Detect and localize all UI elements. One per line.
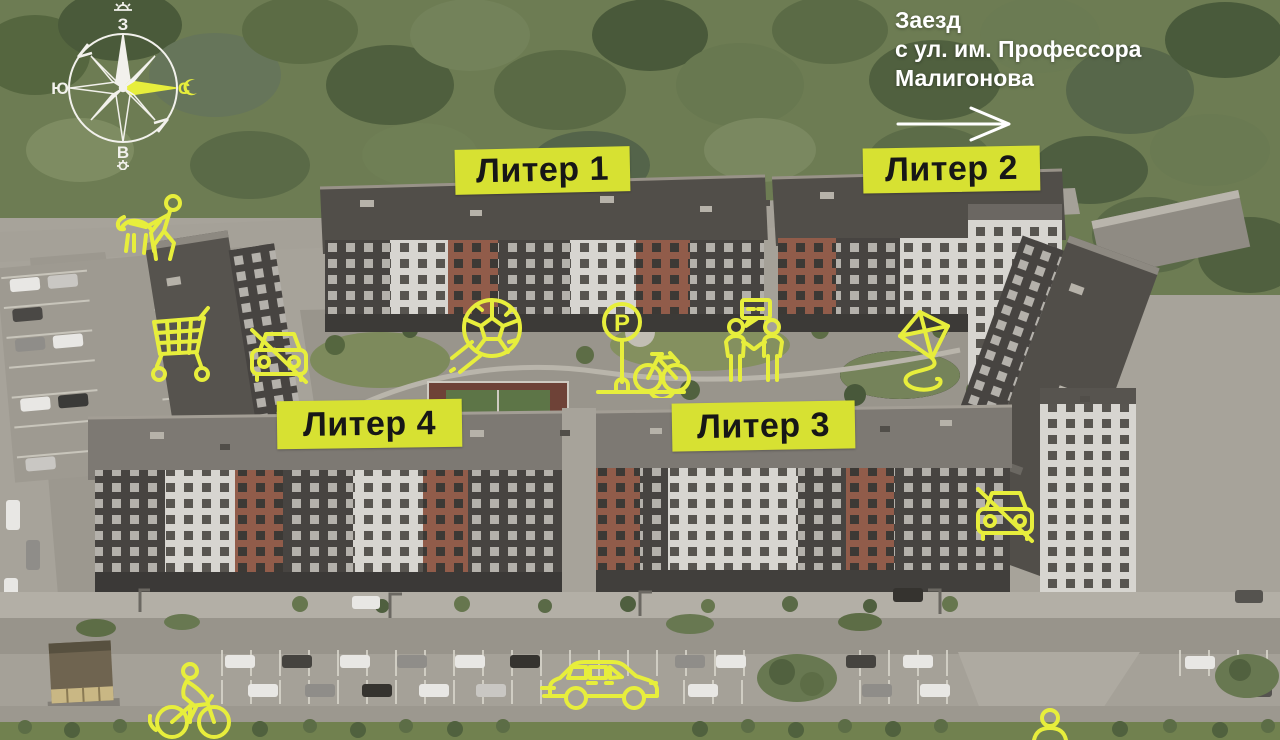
entrance-note-line1: Заезд <box>895 6 1141 35</box>
building-label-liter-3[interactable]: Литер 3 <box>672 400 856 451</box>
no-cars-icon <box>246 324 312 388</box>
dog-walking-icon <box>110 193 200 271</box>
entrance-note-line3: Малигонова <box>895 64 1141 93</box>
cyclist-icon <box>148 662 236 740</box>
sunset-icon <box>114 2 132 10</box>
parking-letter: P <box>614 310 630 337</box>
building-label-liter-2[interactable]: Литер 2 <box>863 145 1041 193</box>
soccer-ball-icon <box>446 296 524 380</box>
kite-icon <box>892 308 962 396</box>
entrance-note: Заезд с ул. им. Профессора Малигонова <box>895 6 1141 145</box>
compass-west-label: З <box>118 15 129 34</box>
pedestrian-partial-icon <box>1028 706 1072 740</box>
compass-rose-icon: З Ю С В <box>48 0 198 170</box>
compass-east-label: В <box>117 143 129 162</box>
compass-south-label: Ю <box>51 79 69 98</box>
shopping-cart-icon <box>146 302 226 386</box>
building-label-liter-1[interactable]: Литер 1 <box>455 146 631 195</box>
entrance-note-line2: с ул. им. Профессора <box>895 35 1141 64</box>
building-label-liter-4[interactable]: Литер 4 <box>277 399 463 450</box>
entrance-arrow-icon <box>895 103 1020 145</box>
bike-parking-icon: P <box>592 296 692 398</box>
neighbors-meeting-icon <box>712 296 796 392</box>
car-driving-icon <box>540 652 666 714</box>
masterplan-aerial-view: З Ю С В Заезд с ул. им. Профессора Малиг… <box>0 0 1280 740</box>
no-cars-icon-2 <box>972 482 1038 548</box>
